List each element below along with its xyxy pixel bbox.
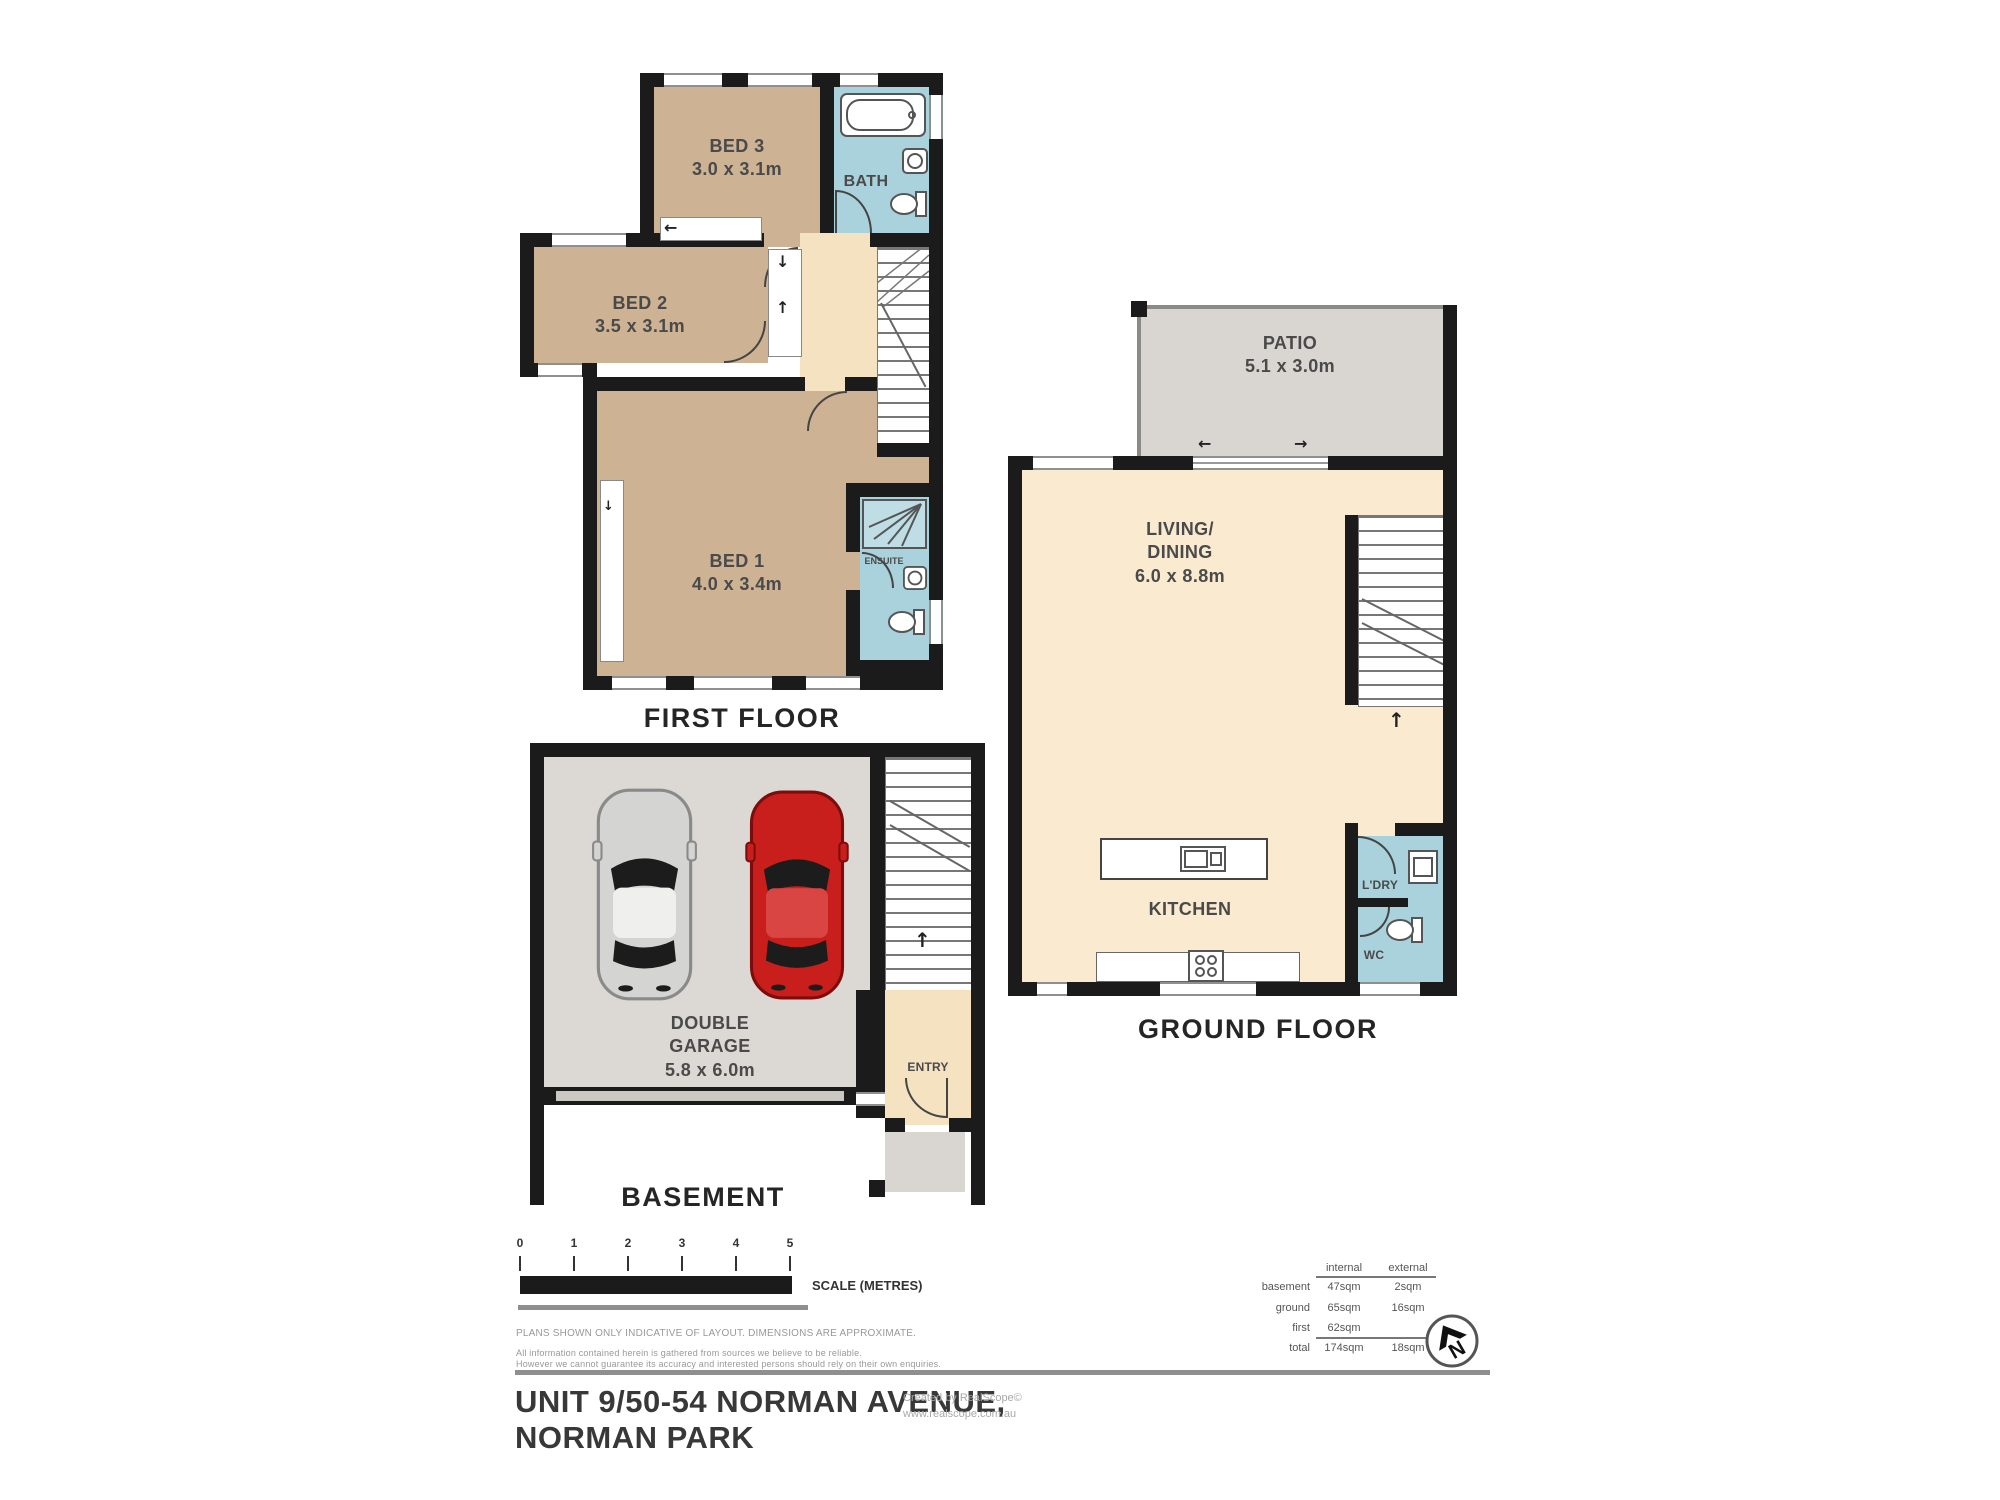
scale-label: SCALE (METRES) bbox=[812, 1278, 923, 1293]
scale-tick bbox=[573, 1256, 575, 1271]
laundry-label: L'DRY bbox=[1362, 878, 1398, 894]
window bbox=[1033, 456, 1113, 470]
disclaimer-line: However we cannot guarantee its accuracy… bbox=[516, 1359, 941, 1369]
wall bbox=[877, 443, 943, 457]
window bbox=[806, 676, 860, 690]
window bbox=[612, 676, 666, 690]
direction-arrow-icon: ↓ bbox=[603, 500, 614, 513]
area-row-label: total bbox=[1240, 1342, 1310, 1354]
window bbox=[538, 363, 582, 377]
area-col-header: internal bbox=[1316, 1262, 1372, 1274]
wall bbox=[845, 377, 877, 391]
wall bbox=[949, 1118, 971, 1132]
basement-title: BASEMENT bbox=[621, 1182, 785, 1213]
ground-floor-stairs bbox=[1358, 515, 1445, 707]
patio-wall bbox=[1137, 305, 1443, 309]
table-rule bbox=[1316, 1337, 1436, 1339]
stove-icon bbox=[1188, 950, 1224, 982]
scale-tick bbox=[681, 1256, 683, 1271]
scale-tick bbox=[627, 1256, 629, 1271]
wall bbox=[583, 377, 805, 391]
area-row-label: ground bbox=[1240, 1302, 1310, 1314]
wall bbox=[1131, 301, 1147, 317]
window bbox=[664, 73, 722, 87]
divider-rule bbox=[518, 1305, 808, 1310]
direction-arrow-icon: ↓ bbox=[776, 254, 789, 270]
wall bbox=[1345, 515, 1358, 705]
bed1-label: BED 14.0 x 3.4m bbox=[692, 550, 782, 597]
entry-porch bbox=[885, 1132, 965, 1192]
disclaimer-line: PLANS SHOWN ONLY INDICATIVE OF LAYOUT. D… bbox=[516, 1328, 916, 1339]
wall bbox=[846, 497, 860, 552]
scale-mark: 1 bbox=[571, 1236, 578, 1250]
wall bbox=[885, 1118, 905, 1132]
direction-arrow-icon: ↑ bbox=[776, 300, 789, 316]
wall bbox=[1008, 456, 1022, 996]
area-row-label: first bbox=[1240, 1322, 1310, 1334]
disclaimer-line: All information contained herein is gath… bbox=[516, 1348, 862, 1358]
footer-rule bbox=[515, 1370, 1490, 1375]
wall bbox=[846, 483, 943, 497]
sliding-door-track bbox=[1193, 462, 1328, 464]
basin-icon bbox=[903, 566, 927, 590]
credit-line2: www.realscope.com.au bbox=[903, 1408, 1016, 1420]
first-floor-hallway bbox=[800, 233, 877, 391]
window bbox=[1037, 982, 1067, 996]
scale-tick bbox=[519, 1256, 521, 1271]
window bbox=[552, 233, 626, 247]
slider-arrow-icon: ← bbox=[1198, 436, 1211, 452]
scale-mark: 3 bbox=[679, 1236, 686, 1250]
wall bbox=[929, 73, 943, 690]
window bbox=[1360, 982, 1420, 996]
area-row-label: basement bbox=[1240, 1281, 1310, 1293]
area-value: 174sqm bbox=[1316, 1342, 1372, 1354]
wc-label: WC bbox=[1364, 948, 1384, 964]
toilet-icon bbox=[1383, 914, 1425, 946]
window bbox=[856, 1092, 885, 1106]
area-value: 2sqm bbox=[1380, 1281, 1436, 1293]
wall bbox=[1443, 305, 1457, 996]
stairs-up-arrow-icon: ↑ bbox=[1388, 710, 1405, 730]
wall bbox=[846, 590, 860, 660]
window bbox=[694, 676, 772, 690]
stair-winder-lines bbox=[877, 247, 929, 307]
ensuite-label: ENSUITE bbox=[864, 556, 903, 568]
ground-floor-title: GROUND FLOOR bbox=[1138, 1014, 1378, 1045]
scale-tick bbox=[735, 1256, 737, 1271]
scale-mark: 0 bbox=[517, 1236, 524, 1250]
area-value: 47sqm bbox=[1316, 1281, 1372, 1293]
window bbox=[1160, 982, 1256, 996]
basement-stairs bbox=[885, 757, 973, 992]
silver-car-icon bbox=[592, 787, 697, 1002]
bed3-label: BED 33.0 x 3.1m bbox=[692, 135, 782, 182]
area-value: 62sqm bbox=[1316, 1322, 1372, 1334]
red-car-icon bbox=[742, 789, 852, 1001]
wall bbox=[583, 377, 597, 690]
sink-icon bbox=[1180, 846, 1226, 872]
first-floor-title: FIRST FLOOR bbox=[644, 703, 840, 734]
door-leaf bbox=[835, 190, 837, 233]
bath-label: BATH bbox=[844, 172, 889, 193]
shower-icon bbox=[864, 501, 924, 547]
scale-mark: 5 bbox=[787, 1236, 794, 1250]
kitchen-label: KITCHEN bbox=[1149, 898, 1232, 921]
north-arrow-icon: N bbox=[1424, 1313, 1480, 1369]
patio-wall bbox=[1137, 305, 1141, 456]
wall bbox=[530, 743, 544, 1205]
wall bbox=[640, 73, 654, 247]
living-dining-label: LIVING/DINING6.0 x 8.8m bbox=[1135, 518, 1225, 588]
bed2-label: BED 23.5 x 3.1m bbox=[595, 292, 685, 339]
stairs-up-arrow-icon: ↑ bbox=[914, 930, 931, 950]
credit-line1: Created by RealScope© bbox=[903, 1392, 1022, 1404]
property-title-line2: NORMAN PARK bbox=[515, 1420, 754, 1456]
wall bbox=[1328, 456, 1457, 470]
window bbox=[840, 73, 878, 87]
wall bbox=[870, 233, 929, 247]
toilet-icon bbox=[888, 188, 928, 220]
scale-mark: 2 bbox=[625, 1236, 632, 1250]
door-leaf bbox=[946, 1078, 948, 1118]
garage-door bbox=[556, 1091, 844, 1101]
wall bbox=[870, 757, 885, 990]
table-rule bbox=[1316, 1276, 1436, 1278]
scale-tick bbox=[789, 1256, 791, 1271]
wall bbox=[820, 87, 834, 233]
wall bbox=[1113, 456, 1193, 470]
scale-bar-rule bbox=[520, 1276, 792, 1294]
wall bbox=[1352, 898, 1408, 907]
window bbox=[748, 73, 812, 87]
garage-label: DOUBLEGARAGE5.8 x 6.0m bbox=[665, 1012, 755, 1082]
entry-label: ENTRY bbox=[907, 1060, 948, 1076]
wall bbox=[971, 743, 985, 1205]
slider-arrow-icon: → bbox=[1294, 436, 1307, 452]
floorplan-page: ← ↓ ↑ ↓ BED 33.0 x 3.1m BATH BED 23.5 x … bbox=[0, 0, 2000, 1500]
window bbox=[929, 600, 943, 644]
area-value: 65sqm bbox=[1316, 1302, 1372, 1314]
area-col-header: external bbox=[1380, 1262, 1436, 1274]
wall bbox=[846, 660, 943, 676]
direction-arrow-icon: ← bbox=[664, 220, 677, 236]
patio-label: PATIO5.1 x 3.0m bbox=[1245, 332, 1335, 379]
window bbox=[929, 95, 943, 139]
toilet-icon bbox=[886, 606, 926, 638]
bathtub-icon bbox=[840, 93, 926, 137]
wall bbox=[869, 1180, 885, 1197]
scale-mark: 4 bbox=[733, 1236, 740, 1250]
wall bbox=[530, 743, 985, 757]
basin-icon bbox=[902, 148, 928, 174]
washer-icon bbox=[1408, 850, 1438, 884]
wall bbox=[520, 233, 534, 377]
